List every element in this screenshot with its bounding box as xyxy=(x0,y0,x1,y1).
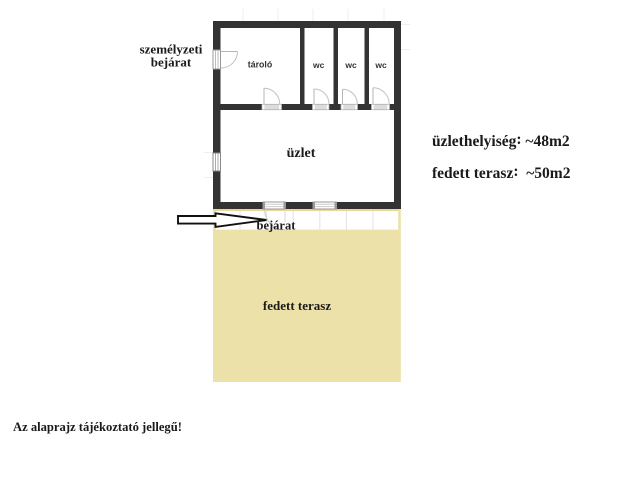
svg-text:fedett terasz: fedett terasz xyxy=(263,298,331,313)
svg-text:üzlethelyiség: ~48m2: üzlethelyiség: ~48m2 xyxy=(432,131,570,150)
svg-text:wc: wc xyxy=(312,60,325,70)
svg-text:wc: wc xyxy=(344,60,357,70)
svg-text:Az alaprajz tájékoztató jelleg: Az alaprajz tájékoztató jellegű! xyxy=(13,420,182,434)
svg-text:tároló: tároló xyxy=(248,60,273,70)
svg-text:wc: wc xyxy=(374,60,387,70)
svg-text:bejárat: bejárat xyxy=(151,55,192,70)
svg-text:fedett terasz: ~50m2: fedett terasz: ~50m2 xyxy=(432,163,571,182)
svg-text:bejárat: bejárat xyxy=(257,219,297,233)
svg-text:üzlet: üzlet xyxy=(287,146,316,161)
